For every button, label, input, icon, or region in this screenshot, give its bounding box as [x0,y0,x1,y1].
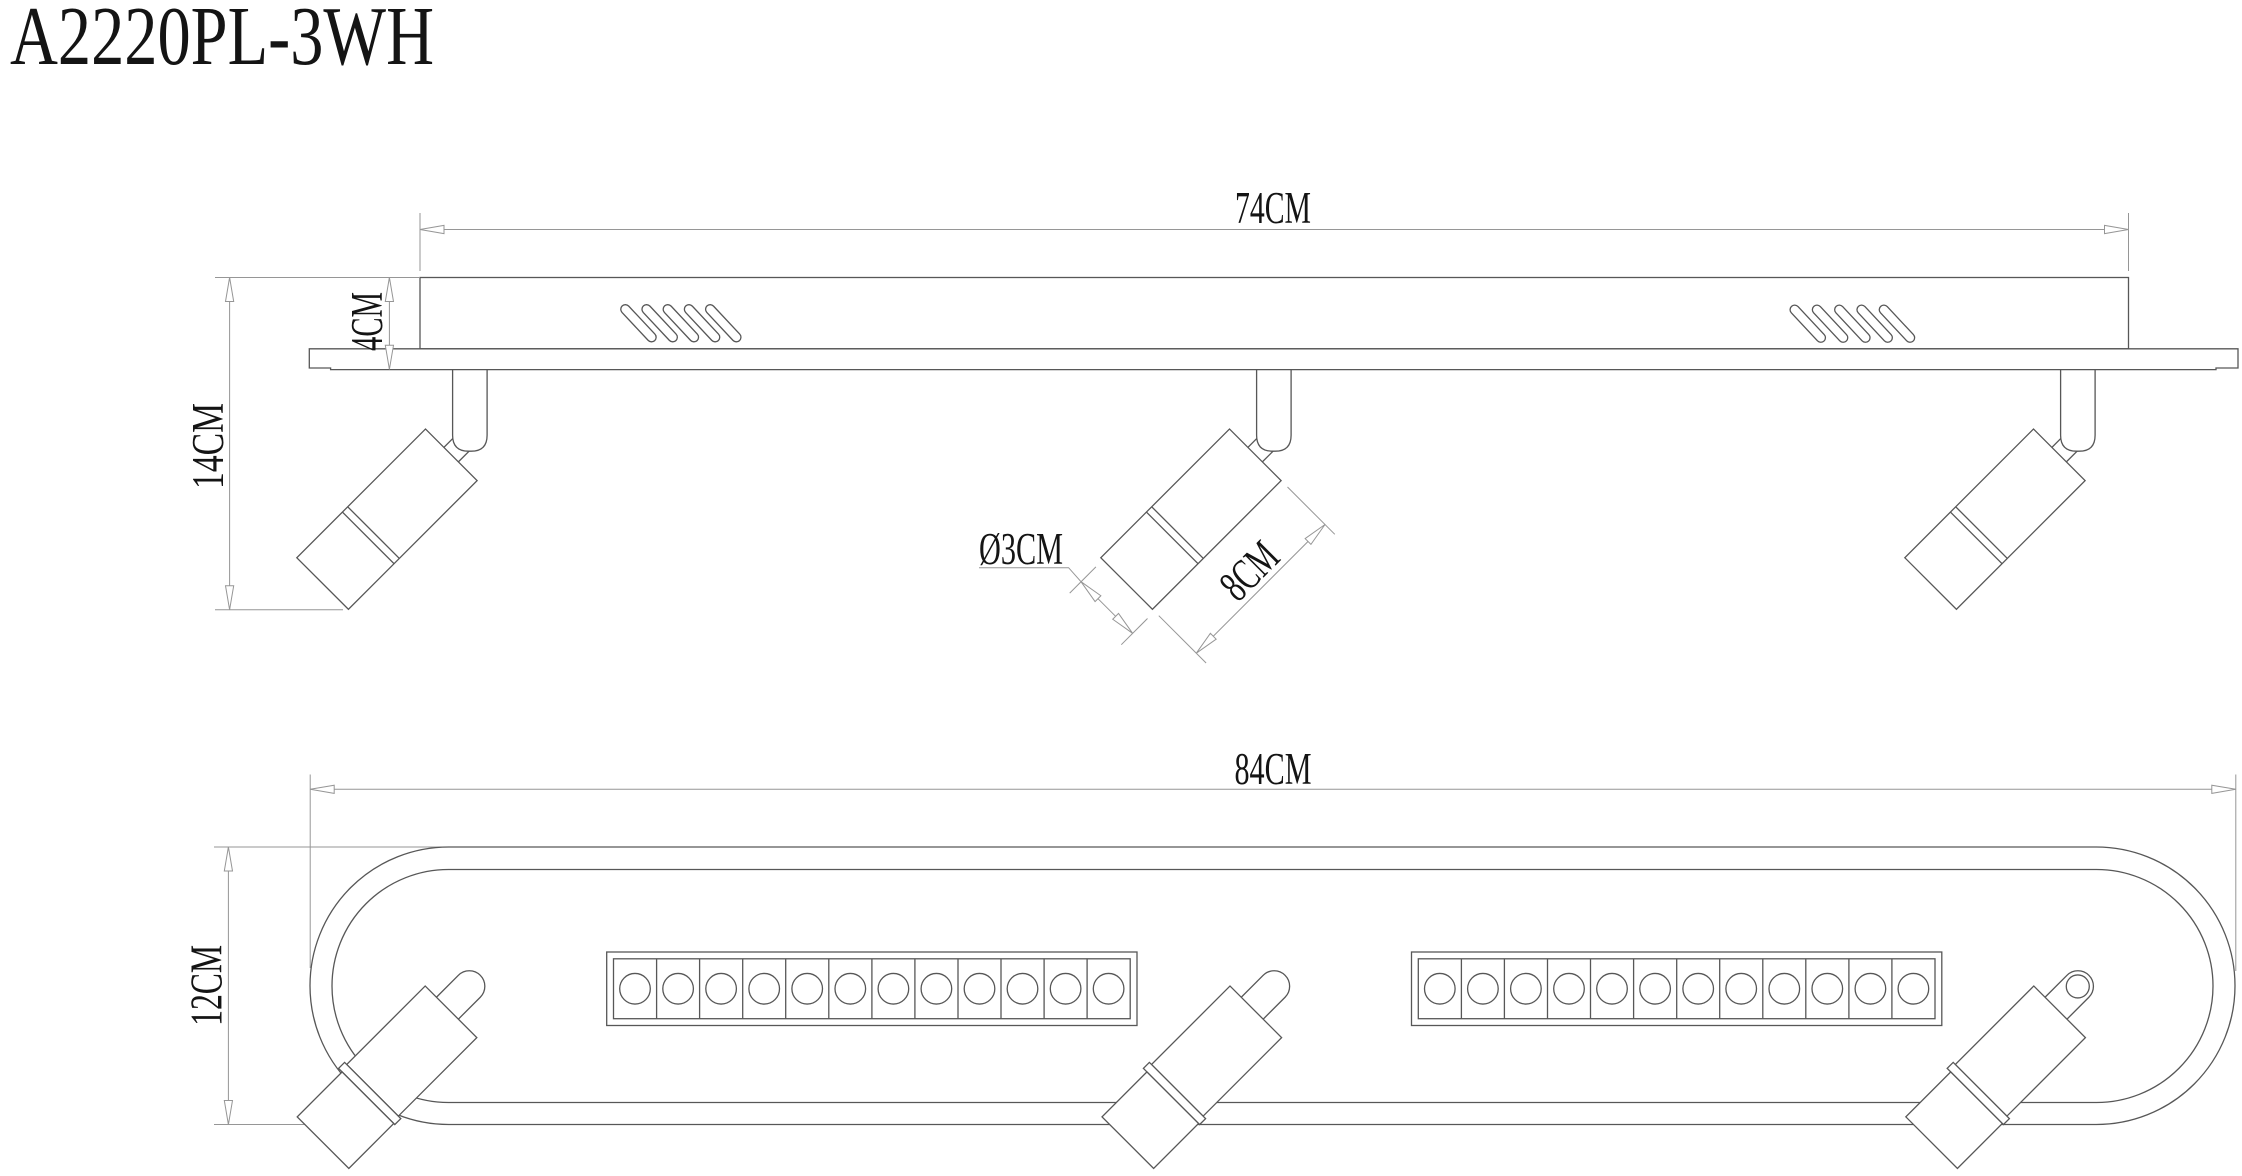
svg-text:12CM: 12CM [182,945,232,1026]
svg-text:14CM: 14CM [183,403,233,489]
svg-text:74CM: 74CM [1235,183,1311,233]
svg-text:84CM: 84CM [1235,744,1312,794]
svg-text:4CM: 4CM [342,292,392,351]
svg-text:A2220PL-3WH: A2220PL-3WH [10,0,434,83]
svg-text:Ø3CM: Ø3CM [979,524,1063,574]
